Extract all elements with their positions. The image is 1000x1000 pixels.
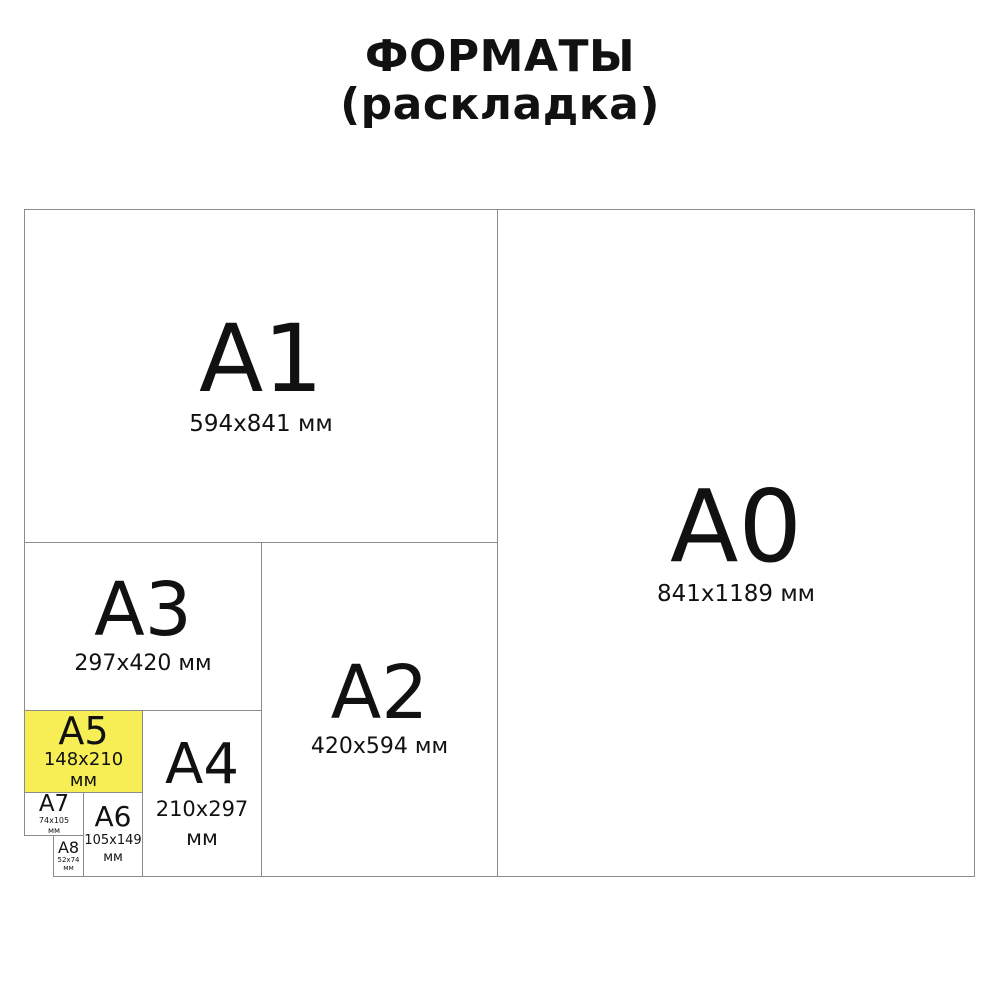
format-size-a7-line1: 74x105 — [39, 816, 69, 825]
format-label-a6: A6 — [95, 802, 132, 833]
format-box-a8: A8 52x74 мм — [53, 835, 84, 877]
format-label-a3: A3 — [94, 573, 192, 648]
diagram-title-line-1: ФОРМАТЫ — [0, 33, 1000, 81]
format-box-a4: A4 210x297 мм — [142, 710, 262, 877]
format-box-a1: A1 594x841 мм — [24, 209, 498, 543]
format-size-a0: 841x1189 мм — [657, 578, 815, 610]
format-size-a6-line2: мм — [103, 850, 123, 867]
format-size-a4-line2: мм — [186, 824, 218, 852]
paper-formats-diagram: ФОРМАТЫ (раскладка) A1 594x841 мм A0 841… — [0, 0, 1000, 1000]
format-size-a7-line2: мм — [48, 826, 60, 835]
diagram-title: ФОРМАТЫ (раскладка) — [0, 33, 1000, 129]
format-label-a2: A2 — [331, 656, 429, 731]
format-label-a5: A5 — [58, 712, 108, 750]
format-size-a5-line1: 148x210 — [44, 750, 123, 771]
format-box-a3: A3 297x420 мм — [24, 542, 262, 711]
format-size-a8-line1: 52x74 — [58, 856, 80, 864]
format-label-a0: A0 — [670, 476, 802, 578]
format-box-a7: A7 74x105 мм — [24, 792, 84, 836]
format-size-a3: 297x420 мм — [74, 649, 211, 680]
format-label-a4: A4 — [165, 735, 239, 795]
format-size-a2: 420x594 мм — [311, 732, 448, 763]
format-size-a1: 594x841 мм — [189, 408, 332, 440]
format-box-a6: A6 105x149 мм — [83, 792, 143, 877]
format-label-a7: A7 — [39, 793, 69, 816]
format-size-a6-line1: 105x149 — [84, 833, 141, 850]
format-size-a5-line2: мм — [70, 771, 97, 792]
format-box-a2: A2 420x594 мм — [261, 542, 498, 877]
format-box-a0: A0 841x1189 мм — [497, 209, 975, 877]
format-size-a4-line1: 210x297 — [156, 795, 249, 823]
diagram-title-line-2: (раскладка) — [0, 81, 1000, 129]
format-box-a5-highlighted: A5 148x210 мм — [24, 710, 143, 793]
format-size-a8-line2: мм — [63, 864, 74, 872]
format-label-a8: A8 — [58, 840, 79, 856]
format-label-a1: A1 — [199, 312, 323, 408]
